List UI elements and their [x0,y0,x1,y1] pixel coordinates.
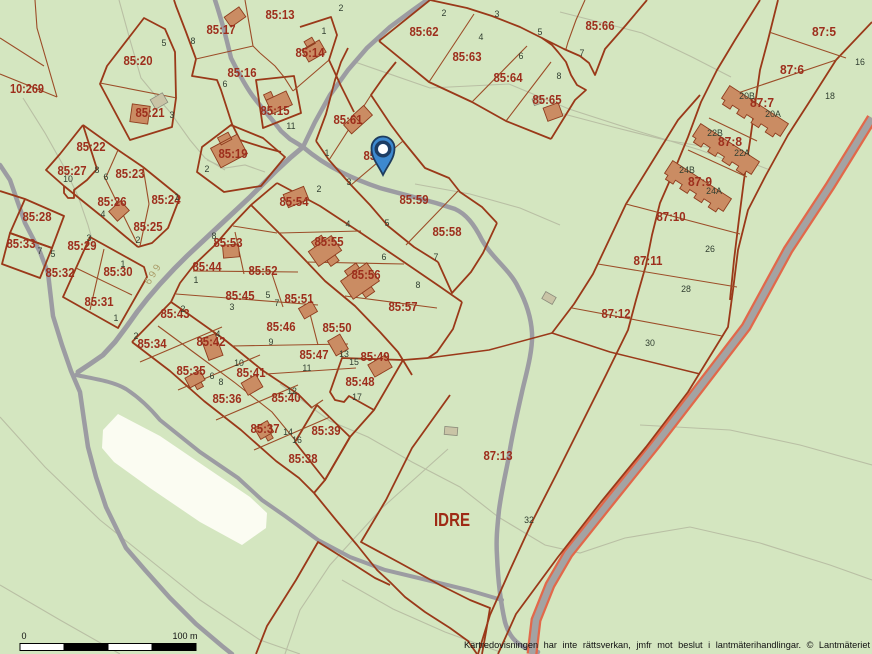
svg-text:4: 4 [101,209,106,219]
svg-text:6: 6 [382,252,387,262]
svg-text:85:22: 85:22 [77,139,106,154]
svg-text:4: 4 [216,329,221,339]
svg-text:85:65: 85:65 [533,92,562,107]
svg-text:1: 1 [175,192,180,202]
svg-text:1: 1 [325,148,330,158]
svg-text:85:49: 85:49 [361,349,390,364]
svg-text:3: 3 [230,302,235,312]
svg-text:85:45: 85:45 [226,288,255,303]
svg-text:18: 18 [825,91,835,101]
svg-text:85:16: 85:16 [228,65,257,80]
svg-text:9: 9 [269,337,274,347]
svg-text:85:28: 85:28 [23,209,52,224]
svg-text:2: 2 [181,304,186,314]
svg-text:85:38: 85:38 [289,451,318,466]
svg-text:87:5: 87:5 [812,24,836,39]
svg-text:2: 2 [339,3,344,13]
svg-text:8: 8 [557,71,562,81]
svg-text:85:31: 85:31 [85,294,114,309]
svg-text:85:33: 85:33 [7,236,36,251]
svg-text:3: 3 [170,110,175,120]
svg-text:13: 13 [339,349,349,359]
svg-text:17: 17 [352,392,362,402]
svg-text:85:48: 85:48 [346,374,375,389]
svg-text:85:37: 85:37 [251,421,280,436]
svg-text:8: 8 [95,165,100,175]
svg-text:87:11: 87:11 [634,253,663,268]
svg-text:8: 8 [416,280,421,290]
svg-text:8: 8 [212,231,217,241]
svg-text:3: 3 [347,177,352,187]
svg-text:85:52: 85:52 [249,263,278,278]
svg-text:6: 6 [223,79,228,89]
svg-text:15: 15 [349,357,359,367]
svg-text:85:54: 85:54 [280,194,310,209]
svg-text:32: 32 [524,515,534,525]
svg-text:85:61: 85:61 [334,112,363,127]
svg-text:10:269: 10:269 [10,81,44,96]
svg-text:2: 2 [134,331,139,341]
svg-text:85:26: 85:26 [98,194,127,209]
svg-text:5: 5 [162,38,167,48]
svg-text:6: 6 [519,51,524,61]
svg-text:22A: 22A [734,148,750,158]
svg-text:85:23: 85:23 [116,166,145,181]
svg-text:2: 2 [317,184,322,194]
svg-text:87:12: 87:12 [602,306,631,321]
svg-text:16: 16 [292,435,302,445]
svg-text:85:29: 85:29 [68,238,97,253]
svg-text:30: 30 [645,338,655,348]
svg-text:0: 0 [21,631,26,641]
svg-text:85:19: 85:19 [219,146,248,161]
svg-text:85:53: 85:53 [214,235,243,250]
svg-text:7: 7 [38,246,43,256]
svg-text:10: 10 [234,358,244,368]
svg-text:85:47: 85:47 [300,347,329,362]
svg-text:22B: 22B [707,128,723,138]
svg-text:85:13: 85:13 [266,7,295,22]
svg-text:11: 11 [286,121,295,131]
svg-text:2: 2 [442,8,447,18]
svg-text:5: 5 [51,249,56,259]
svg-text:4: 4 [479,32,484,42]
svg-text:100 m: 100 m [172,631,197,641]
svg-text:11: 11 [302,363,311,373]
svg-text:85:25: 85:25 [134,219,163,234]
svg-text:Kartredovisningen har inte rät: Kartredovisningen har inte rättsverkan, … [464,640,870,650]
svg-text:10: 10 [63,174,73,184]
svg-text:85:56: 85:56 [352,267,381,282]
svg-text:24A: 24A [706,186,722,196]
svg-text:5: 5 [266,290,271,300]
svg-text:85:39: 85:39 [312,423,341,438]
svg-text:85:42: 85:42 [197,334,226,349]
svg-text:7: 7 [434,252,439,262]
svg-text:26: 26 [705,244,715,254]
svg-text:7: 7 [275,298,280,308]
svg-text:IDRE: IDRE [434,510,470,530]
svg-text:85:32: 85:32 [46,265,75,280]
svg-text:85:51: 85:51 [285,291,314,306]
svg-text:85:21: 85:21 [136,105,165,120]
svg-text:85:64: 85:64 [494,70,524,85]
svg-text:85:20: 85:20 [124,53,153,68]
svg-text:85:63: 85:63 [453,49,482,64]
svg-text:2: 2 [136,235,141,245]
svg-text:85:34: 85:34 [138,336,168,351]
svg-text:85:44: 85:44 [193,259,223,274]
svg-text:8: 8 [191,36,196,46]
svg-text:24B: 24B [679,165,695,175]
svg-text:1: 1 [194,275,199,285]
svg-text:1: 1 [114,313,119,323]
svg-text:6: 6 [104,172,109,182]
svg-text:1: 1 [121,259,126,269]
svg-text:85:59: 85:59 [400,192,429,207]
svg-text:5: 5 [385,218,390,228]
svg-text:85:55: 85:55 [315,234,344,249]
svg-text:2: 2 [205,164,210,174]
svg-text:20A: 20A [765,109,781,119]
svg-text:85:15: 85:15 [261,103,290,118]
svg-text:85:46: 85:46 [267,319,296,334]
svg-text:20B: 20B [739,91,755,101]
svg-text:85:58: 85:58 [433,224,462,239]
svg-text:87:6: 87:6 [780,62,804,77]
svg-text:8: 8 [219,377,224,387]
svg-text:85:66: 85:66 [586,18,615,33]
svg-text:1: 1 [322,26,327,36]
svg-text:4: 4 [346,219,351,229]
svg-text:85:30: 85:30 [104,264,133,279]
svg-text:85:35: 85:35 [177,363,206,378]
svg-text:85:57: 85:57 [389,299,418,314]
svg-text:3: 3 [495,9,500,19]
svg-text:85:62: 85:62 [410,24,439,39]
svg-text:85:50: 85:50 [323,320,352,335]
svg-text:87:10: 87:10 [657,209,686,224]
svg-text:5: 5 [538,27,543,37]
svg-text:12: 12 [287,386,297,396]
svg-text:16: 16 [855,57,865,67]
svg-text:28: 28 [681,284,691,294]
svg-text:6: 6 [210,371,215,381]
svg-text:85:36: 85:36 [213,391,242,406]
svg-text:7: 7 [580,48,585,58]
svg-text:85:17: 85:17 [207,22,236,37]
svg-text:3: 3 [87,233,92,243]
svg-text:85:14: 85:14 [296,45,326,60]
svg-text:87:13: 87:13 [484,448,513,463]
